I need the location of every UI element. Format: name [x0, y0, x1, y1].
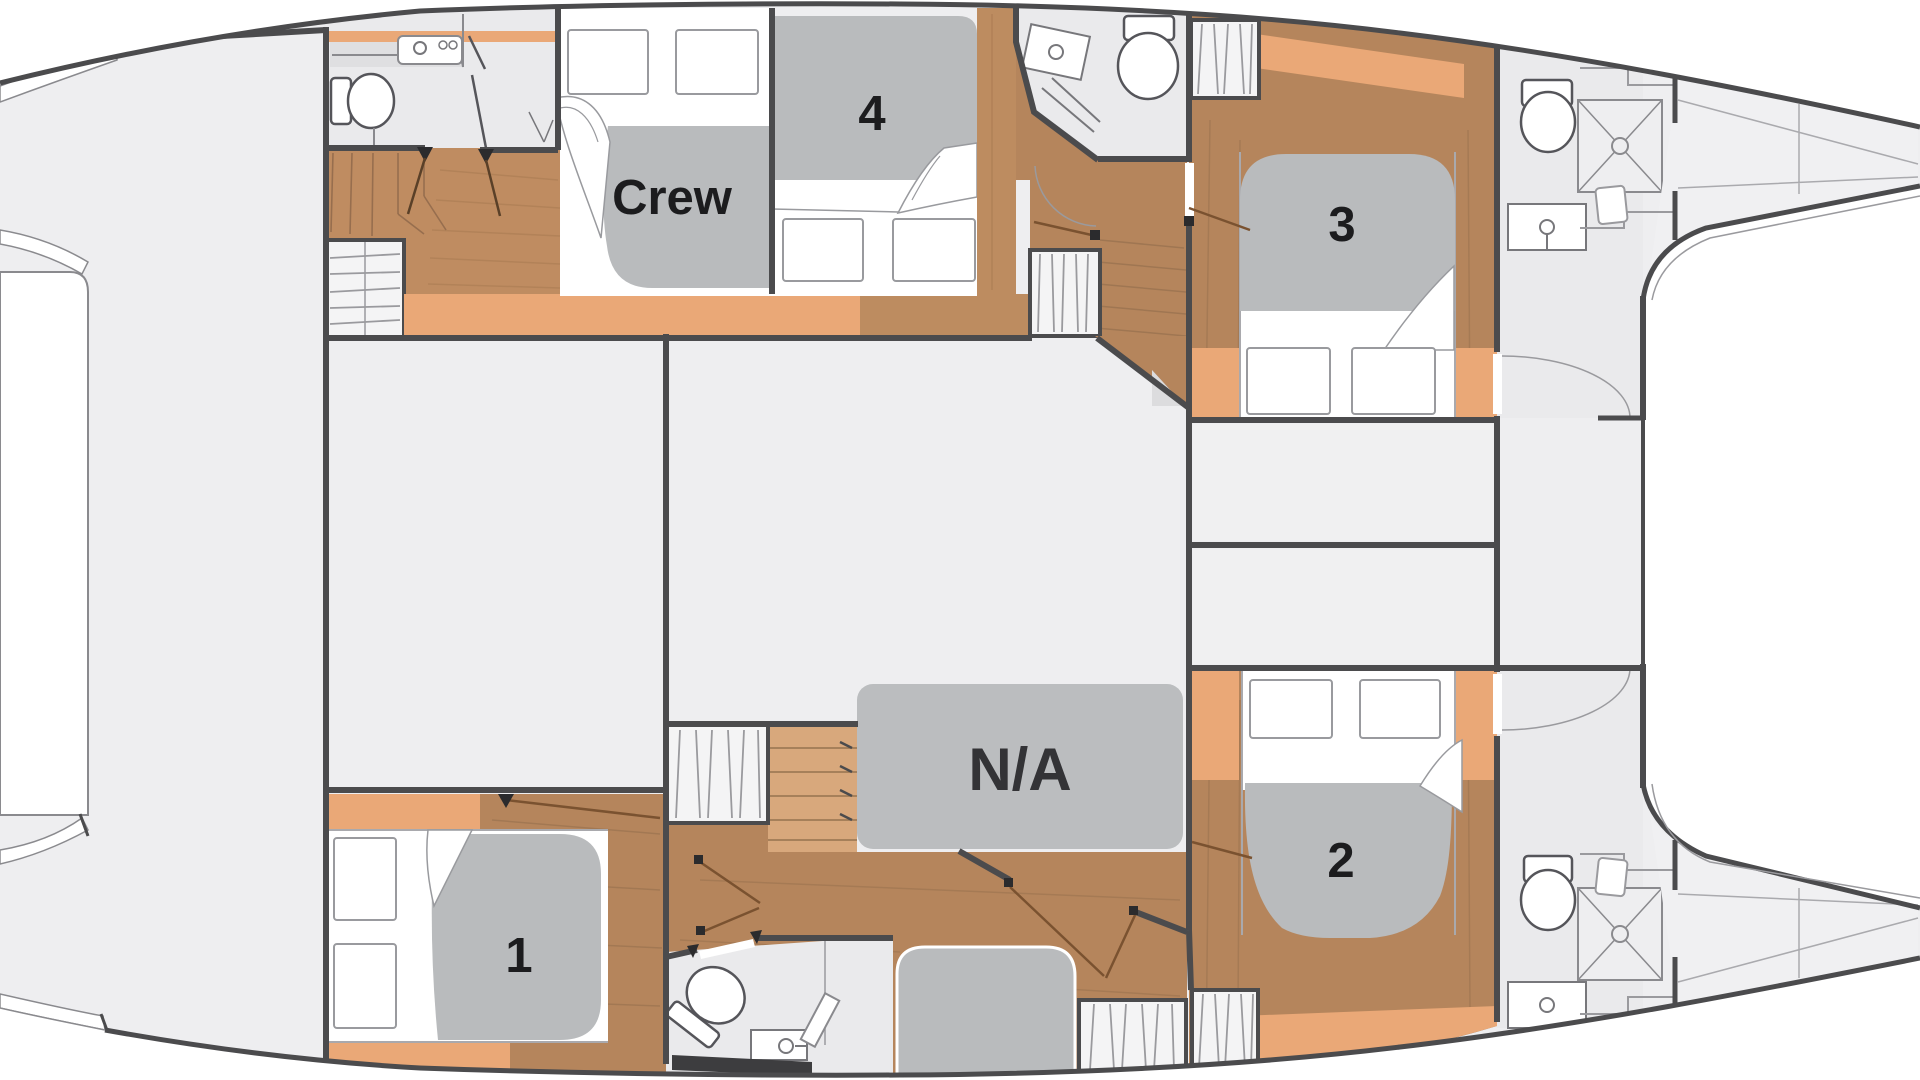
svg-text:Crew: Crew — [612, 171, 733, 225]
svg-text:N/A: N/A — [968, 736, 1071, 803]
svg-text:4: 4 — [858, 87, 885, 141]
svg-text:2: 2 — [1327, 834, 1354, 888]
svg-text:1: 1 — [505, 929, 532, 983]
svg-text:3: 3 — [1328, 198, 1355, 252]
